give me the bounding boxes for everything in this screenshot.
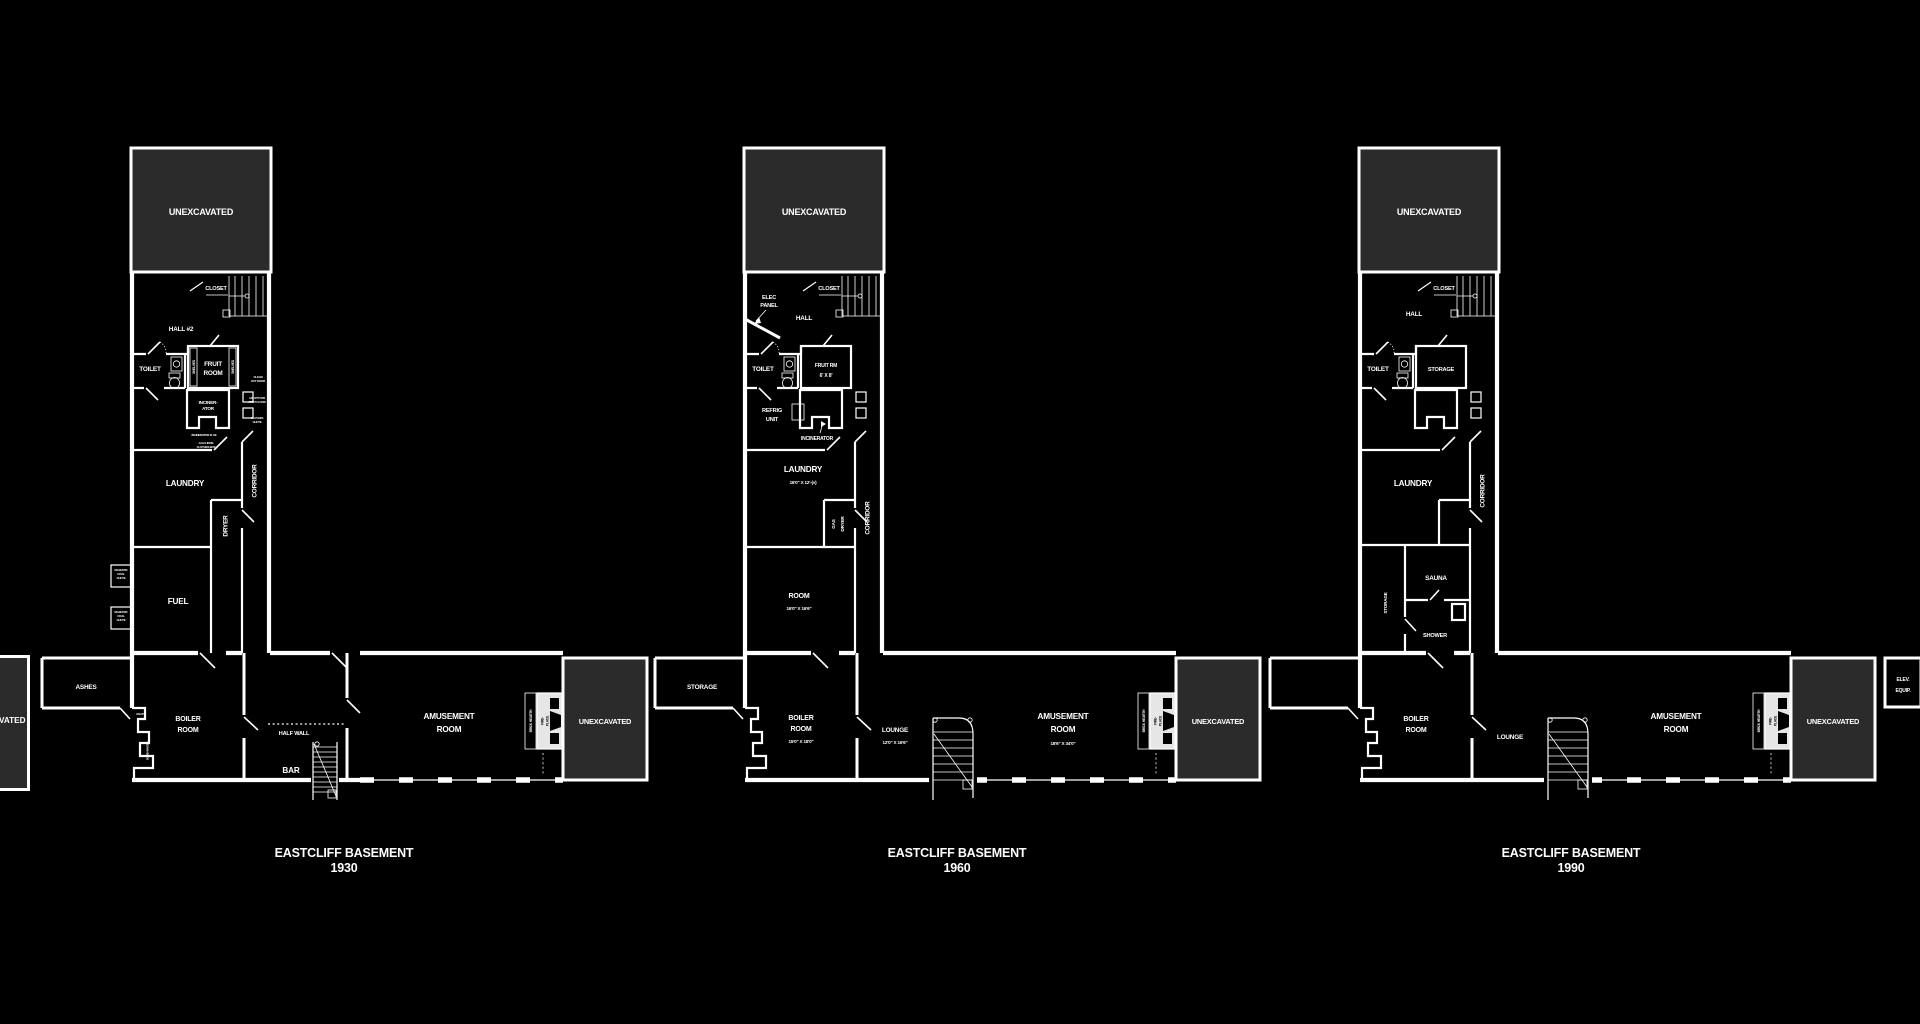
unexcavated-right-label: UNEXCAVATED (1192, 717, 1245, 726)
room-label-amusement-1: AMUSEMENT (1038, 712, 1089, 721)
room-dims-laundry: 16'0" X 12'-(±) (790, 480, 818, 485)
outer-walls (745, 272, 882, 708)
room-dims-fruit-rm: 6' X 8' (820, 373, 833, 379)
room-label-room: ROOM (789, 593, 810, 600)
plan-title-year: 1960 (837, 861, 1077, 876)
unexcavated-top-label: UNEXCAVATED (169, 207, 234, 217)
toilet-fixtures (1397, 357, 1410, 389)
room-label-hall: HALL (796, 315, 813, 322)
corridor: CORRIDOR (1470, 431, 1487, 653)
room-label-storage-upper: STORAGE (1428, 367, 1455, 373)
fireplace: BRICK HEARTH FIRE- PLACE (1138, 693, 1175, 774)
unexcavated-right-block: UNEXCAVATED (1791, 658, 1875, 780)
fireplace-label-2: PLACE (1159, 715, 1163, 726)
elev-equip-room: ELEV. EQUIP. (1885, 658, 1920, 707)
room-label-incinerator-2: ATOR (202, 406, 215, 411)
gas-dryer-label-2: DRYER (840, 516, 845, 532)
room-label-toilet: TOILET (1367, 366, 1389, 373)
floor-plan-1990: UNEXCAVATED CLOSET HALL TOILET STORAGE L (1258, 140, 1920, 816)
dumb-waiter-label: DUMB WAITER (146, 741, 150, 761)
lounge-stairs (929, 718, 977, 800)
unexcavated-right-label: UNEXCAVATED (1807, 717, 1860, 726)
lounge-stairs (1544, 718, 1592, 800)
room-label-amusement-1: AMUSEMENT (424, 712, 475, 721)
plan-title-year: 1930 (224, 861, 464, 876)
floor-plan-1930: UNEXCAVATED CLOSET HALL #2 TOILET SHELVE… (30, 140, 710, 816)
room-label-fruit-room-1: FRUIT (204, 361, 222, 368)
brick-hearth-label: BRICK HEARTH (1757, 709, 1761, 733)
partial-left-unexcavated-block: UNEXCAVATED (0, 655, 30, 791)
room-label-amusement-2: ROOM (1664, 725, 1689, 734)
plan-title-1990: EASTCLIFF BASEMENT 1990 (1451, 846, 1691, 876)
room-label-toilet: TOILET (139, 366, 161, 373)
room-label-lounge: LOUNGE (882, 727, 909, 734)
plan-title-1930: EASTCLIFF BASEMENT 1930 (224, 846, 464, 876)
room-label-bar: BAR (282, 766, 299, 775)
storage-upper-room: STORAGE (1416, 335, 1466, 388)
unexcavated-right-block: UNEXCAVATED (563, 658, 647, 780)
bar-stairs (311, 742, 339, 800)
fireplace-label-2: PLACE (1774, 715, 1778, 726)
room-label-lounge: LOUNGE (1497, 734, 1524, 741)
half-wall-label: HALF WALL (279, 731, 310, 737)
closet: CLOSET (803, 282, 841, 295)
room-label-amusement-2: ROOM (437, 725, 462, 734)
room-label-boiler-2: ROOM (1406, 727, 1427, 734)
tiny-annotations-right: CLEAN OUT DOOR ASH PIT FOR FIRST FLOOR C… (248, 375, 266, 424)
unexcavated-top-block: UNEXCAVATED (744, 148, 884, 272)
fireplace-label-1: FIRE- (541, 717, 545, 725)
room-label-fruit-rm: FRUIT RM (815, 363, 837, 369)
sauna-suite: SAUNA STORAGE SHOWER (1383, 545, 1470, 653)
room-label-boiler-1: BOILER (175, 716, 200, 723)
wing-walls (42, 653, 563, 780)
plan-title-1960: EASTCLIFF BASEMENT 1960 (837, 846, 1077, 876)
closet: CLOSET (190, 282, 228, 295)
fireplace-label-1: FIRE- (1154, 717, 1158, 725)
room-label-laundry: LAUNDRY (166, 479, 205, 488)
ash-pit-first-floor-label-2: FIRST FLOOR (248, 400, 266, 404)
fireplace-label-2: PLACE (546, 715, 550, 726)
room-dims-room: 16'0" X 16'6" (787, 606, 812, 611)
unexcavated-top-label: UNEXCAVATED (782, 207, 847, 217)
room-label-laundry: LAUNDRY (1394, 479, 1433, 488)
shelves-label-right: SHELVES (231, 359, 235, 374)
closet: CLOSET (1418, 282, 1456, 295)
outer-walls (132, 272, 269, 708)
room-label-hall: HALL (1406, 311, 1423, 318)
laundry: LAUNDRY (1360, 437, 1455, 488)
coal-chute-label-2c: CHUTE (117, 618, 126, 622)
coal-chute-label-1c: CHUTE (117, 576, 126, 580)
plan-title-line1: EASTCLIFF BASEMENT (224, 846, 464, 861)
room-label-dryer: DRYER (223, 515, 230, 537)
room-16x16: ROOM 16'0" X 16'6" (787, 593, 812, 611)
fuel-room: FUEL MAJESTIC COAL CHUTE MAJESTIC COAL C… (111, 565, 188, 629)
unexcavated-top-block: UNEXCAVATED (1359, 148, 1499, 272)
incinerator-flue-label: INCINERATOR FLUE (192, 433, 217, 437)
room-label-sauna: SAUNA (1425, 575, 1447, 582)
upper-stairs (223, 276, 269, 317)
hall-walls (745, 342, 801, 354)
upper-stairs (836, 276, 882, 317)
corridor: CORRIDOR (855, 431, 872, 653)
toilet: TOILET (745, 354, 798, 400)
incinerator-label: INCINERATOR (801, 436, 834, 442)
room-dims-lounge: 12'0" X 16'6" (883, 740, 908, 745)
corridor: CORRIDOR (242, 431, 259, 653)
unexcavated-right-label: UNEXCAVATED (579, 717, 632, 726)
clothes-chute-label-2: CHUTE (253, 420, 262, 424)
brick-hearth-label: BRICK HEARTH (1142, 709, 1146, 733)
room-label-shower: SHOWER (1423, 633, 1447, 639)
fireplace: BRICK HEARTH FIRE- PLACE (1753, 693, 1790, 774)
refrig-unit-label-2: UNIT (766, 417, 779, 423)
incinerator: INCINERATOR (800, 390, 866, 442)
elec-panel-label-1: ELEC (762, 295, 776, 301)
room-label-closet: CLOSET (205, 286, 227, 292)
laundry: LAUNDRY 16'0" X 12'-(±) (745, 437, 840, 485)
room-label-ashes: ASHES (75, 684, 97, 691)
clean-out-door-label-2: OUT DOOR (251, 379, 266, 383)
room-label-hall: HALL #2 (169, 326, 194, 333)
room-label-fruit-room-2: ROOM (203, 370, 222, 377)
room-label-fuel: FUEL (168, 597, 189, 606)
hall: HALL #2 (132, 326, 194, 354)
brick-hearth-label: BRICK HEARTH (529, 709, 533, 733)
wing-walls (1270, 653, 1791, 780)
refrig-unit: REFRIG UNIT (762, 404, 804, 423)
refrig-unit-label-1: REFRIG (762, 408, 782, 414)
room-label-amusement-1: AMUSEMENT (1651, 712, 1702, 721)
incinerator: INCINER- ATOR INCINERATOR FLUE GALV. IRO… (187, 390, 229, 449)
room-label-boiler-2: ROOM (178, 727, 199, 734)
room-label-closet: CLOSET (1433, 286, 1455, 292)
room-label-closet: CLOSET (818, 286, 840, 292)
room-label-amusement-2: ROOM (1051, 725, 1076, 734)
plan-title-line1: EASTCLIFF BASEMENT (1451, 846, 1691, 861)
plan-title-line1: EASTCLIFF BASEMENT (837, 846, 1077, 861)
ash-pit-label: ASH PIT (136, 712, 146, 716)
unexcavated-top-label: UNEXCAVATED (1397, 207, 1462, 217)
elec-panel-label-2: PANEL (760, 303, 778, 309)
elev-equip-label-2: EQUIP. (1895, 688, 1911, 694)
toilet-fixtures (782, 357, 795, 389)
wing-walls (655, 653, 1176, 780)
partial-unexcavated-label: UNEXCAVATED (0, 716, 26, 725)
gas-dryer-label-1: GAS (831, 519, 836, 528)
fireplace-label-1: FIRE- (1769, 717, 1773, 725)
fruit-rm: FRUIT RM 6' X 8' (801, 335, 851, 388)
small-room (1360, 500, 1470, 545)
room-label-corridor: CORRIDOR (865, 501, 872, 535)
floor-plan-1960: UNEXCAVATED CLOSET ELEC PANEL HALL TOILE… (643, 140, 1323, 816)
upper-stairs (1451, 276, 1497, 317)
unexcavated-right-block: UNEXCAVATED (1176, 658, 1260, 780)
outer-walls (1360, 272, 1497, 708)
toilet-fixtures (169, 357, 182, 389)
room-label-storage-side: STORAGE (1383, 592, 1388, 613)
room-dims-boiler: 15'0" X 18'0" (789, 739, 814, 744)
gas-dryer-room: GAS DRYER (745, 500, 855, 547)
room-label-corridor: CORRIDOR (1480, 474, 1487, 508)
room-label-corridor: CORRIDOR (252, 464, 259, 498)
room-label-incinerator-1: INCINER- (199, 400, 218, 405)
room-label-storage-annex: STORAGE (687, 684, 718, 691)
dryer-room: DRYER (132, 500, 242, 653)
incinerator-block (1415, 390, 1481, 428)
toilet: TOILET (1360, 354, 1413, 400)
room-label-boiler-1: BOILER (788, 715, 813, 722)
room-label-boiler-2: ROOM (791, 726, 812, 733)
plan-title-year: 1990 (1451, 861, 1691, 876)
room-label-toilet: TOILET (752, 366, 774, 373)
galv-clothes-box-label-2: CLOTHES BOX (197, 445, 216, 449)
elev-equip-label-1: ELEV. (1897, 677, 1911, 683)
room-label-boiler-1: BOILER (1403, 716, 1428, 723)
room-dims-amusement: 18'6" X 34'0" (1051, 741, 1076, 746)
toilet: TOILET (132, 354, 185, 400)
room-label-laundry: LAUNDRY (784, 465, 823, 474)
fruit-room: SHELVES SHELVES FRUIT ROOM (188, 335, 238, 388)
unexcavated-top-block: UNEXCAVATED (131, 148, 271, 272)
shelves-label-left: SHELVES (192, 359, 196, 374)
elec-panel: ELEC PANEL (745, 295, 780, 338)
hall-walls (1360, 342, 1416, 354)
